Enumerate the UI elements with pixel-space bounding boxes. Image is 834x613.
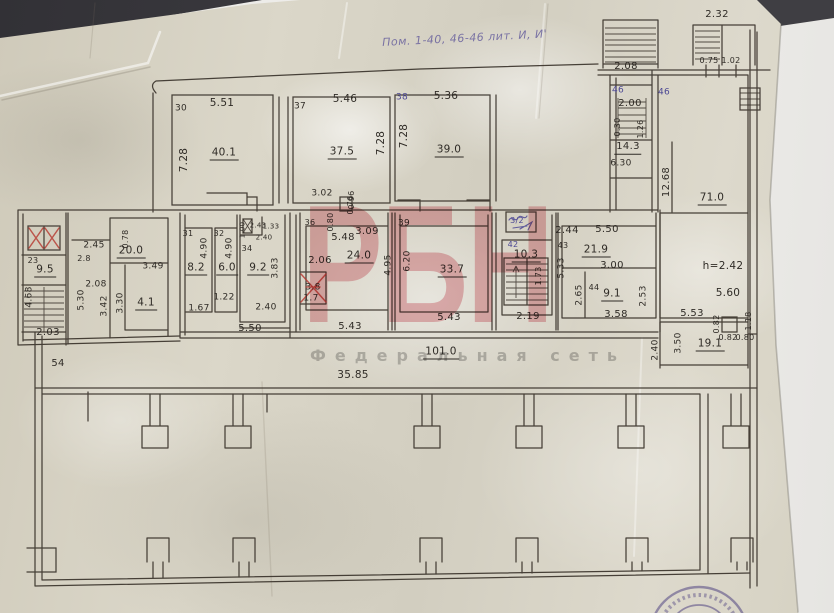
round-stamp	[0, 0, 834, 613]
photo-of-floorplan: 305.517.2840.1375.467.2837.5385.367.2839…	[0, 0, 834, 613]
